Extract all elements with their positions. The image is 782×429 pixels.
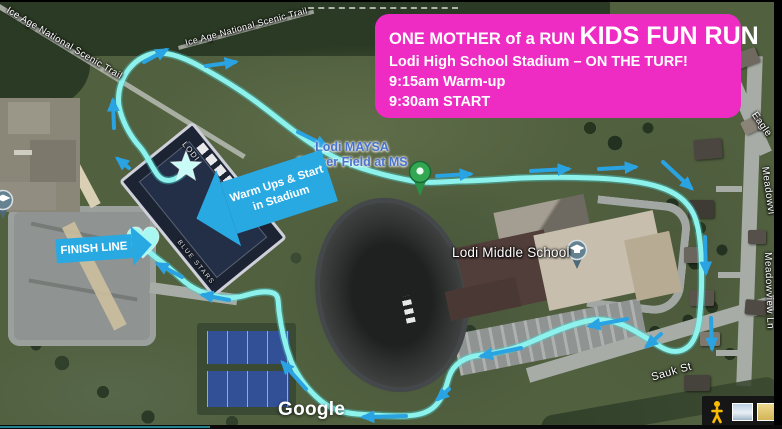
frame-accent-line: [0, 426, 210, 428]
school-pin-high-school[interactable]: [0, 191, 13, 220]
pegman-control[interactable]: [710, 400, 724, 424]
banner-location: Lodi High School Stadium – ON THE TURF!: [389, 54, 729, 70]
finish-line-label: FINISH LINE: [60, 240, 128, 257]
finish-line-label-box: FINISH LINE: [55, 234, 132, 263]
banner-title-prefix: ONE MOTHER of a RUN: [389, 30, 575, 48]
green-map-pin[interactable]: [410, 162, 431, 197]
middle-school-label: Lodi Middle School: [452, 245, 570, 260]
frame-edge-top: [0, 0, 782, 2]
banner-title-main: KIDS FUN RUN: [580, 22, 759, 50]
satellite-map[interactable]: LODI BLUE STARS: [0, 0, 782, 429]
google-logo[interactable]: Google: [278, 399, 345, 421]
banner-start-time: 9:30am START: [389, 94, 729, 110]
frame-edge-right: [774, 0, 782, 429]
event-banner: ONE MOTHER of a RUN KIDS FUN RUN Lodi Hi…: [375, 14, 741, 118]
finish-line-callout-arrow: FINISH LINE: [55, 225, 154, 272]
school-pin-middle-school[interactable]: [568, 241, 587, 270]
arrow-head-right: [131, 225, 154, 266]
map-thumbnail-tile[interactable]: [732, 403, 753, 421]
banner-warmup-time: 9:15am Warm-up: [389, 74, 729, 90]
